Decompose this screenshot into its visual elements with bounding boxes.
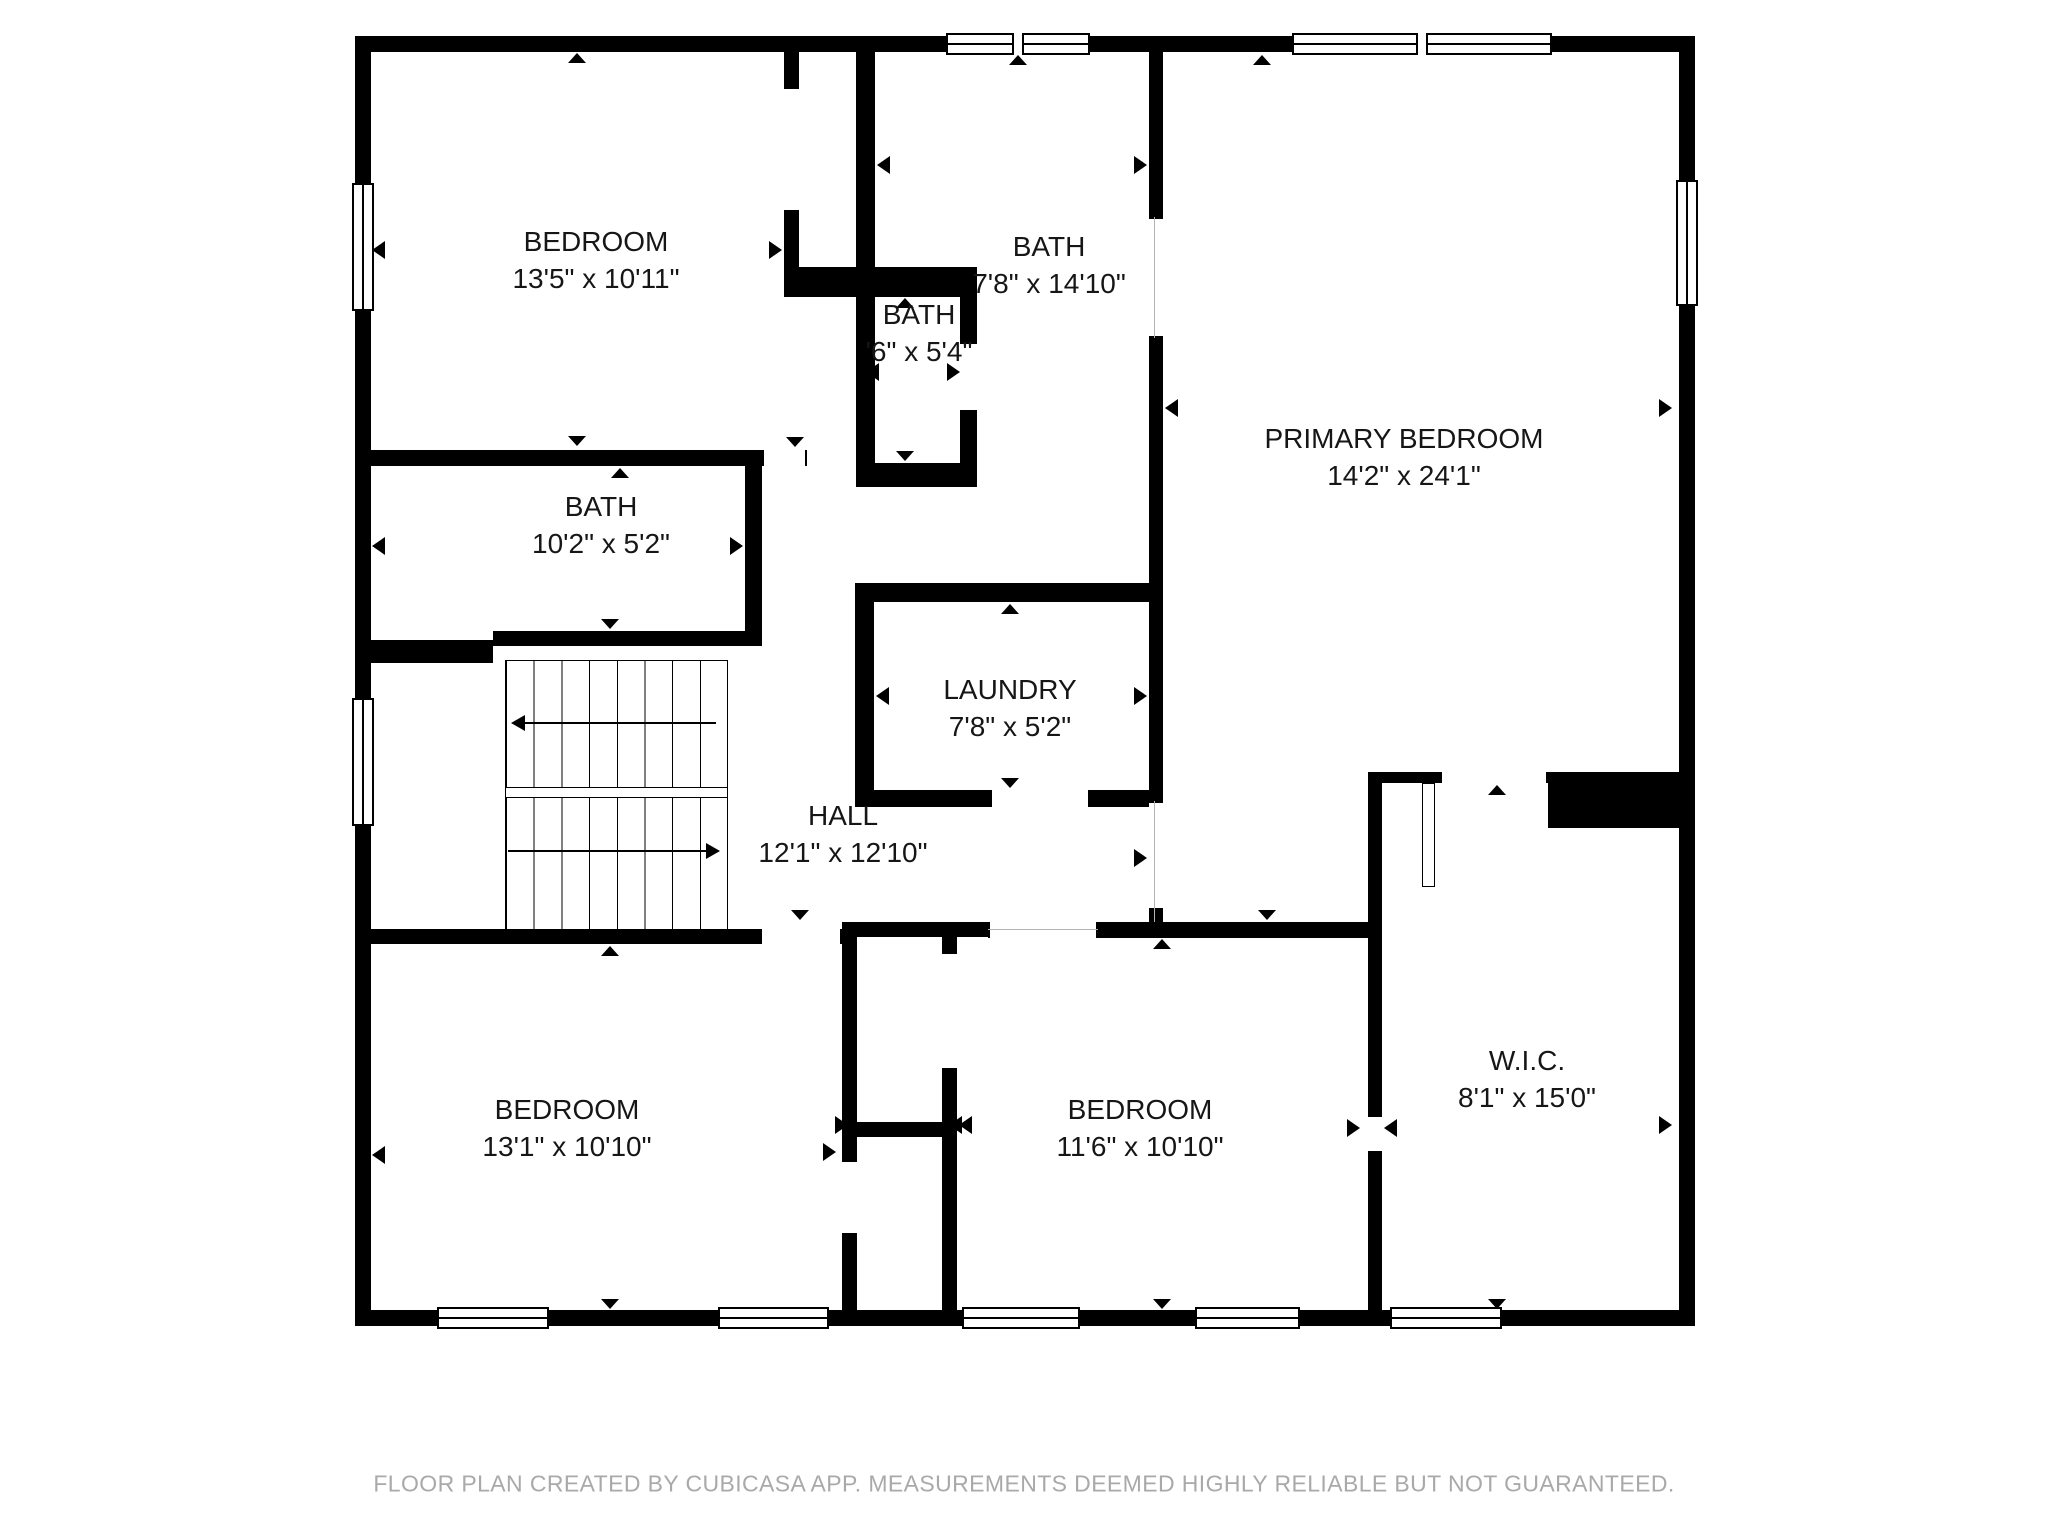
measure-arrow-icon (877, 156, 890, 174)
door-opening (762, 450, 807, 466)
measure-arrow-icon (372, 1146, 385, 1164)
wall (1368, 772, 1440, 783)
stair-direction-arrow (508, 850, 706, 852)
room-boundary-line (1154, 801, 1155, 922)
footer-disclaimer: FLOOR PLAN CREATED BY CUBICASA APP. MEAS… (373, 1471, 1674, 1498)
measure-arrow-icon (1347, 1119, 1360, 1137)
room-name: PRIMARY BEDROOM (1264, 420, 1543, 457)
measure-arrow-icon (876, 687, 889, 705)
room-label-bedroom-bottom-middle: BEDROOM 11'6" x 10'10" (1056, 1091, 1223, 1165)
room-name: BATH (866, 296, 973, 333)
measure-arrow-icon (1659, 399, 1672, 417)
wall (1098, 922, 1382, 938)
door-opening (1368, 1115, 1382, 1153)
measure-arrow-icon (372, 241, 385, 259)
room-name: BEDROOM (1056, 1091, 1223, 1128)
measure-arrow-icon (1153, 939, 1171, 949)
window (1292, 33, 1552, 55)
room-dims: 13'1" x 10'10" (482, 1128, 651, 1165)
measure-arrow-icon (1001, 604, 1019, 614)
window (1195, 1307, 1300, 1329)
room-label-bedroom-top-left: BEDROOM 13'5" x 10'11" (512, 223, 679, 297)
room-dims: 7'8" x 14'10" (972, 265, 1126, 302)
wall (942, 1070, 957, 1311)
measure-arrow-icon (1488, 785, 1506, 795)
wall (842, 1235, 857, 1311)
room-dims: 11'6" x 10'10" (1056, 1128, 1223, 1165)
room-dims: 14'2" x 24'1" (1264, 457, 1543, 494)
measure-arrow-icon (1253, 55, 1271, 65)
wall (855, 583, 874, 807)
cased-opening (988, 922, 1098, 938)
room-label-bath-left: BATH 10'2" x 5'2" (532, 488, 670, 562)
wall (784, 267, 975, 297)
window (718, 1307, 829, 1329)
room-label-hall: HALL 12'1" x 12'10" (758, 797, 927, 871)
door-opening (990, 790, 1090, 807)
room-label-laundry: LAUNDRY 7'8" x 5'2" (943, 671, 1076, 745)
room-boundary-line (1154, 217, 1155, 338)
measure-arrow-icon (1134, 849, 1147, 867)
stair-landing-rail (506, 787, 727, 798)
wall (856, 51, 875, 487)
arrow-right-icon (706, 843, 720, 859)
room-dims: 12'1" x 12'10" (758, 834, 927, 871)
room-name: BATH (532, 488, 670, 525)
wall (1149, 51, 1163, 217)
room-label-primary-bedroom: PRIMARY BEDROOM 14'2" x 24'1" (1264, 420, 1543, 494)
measure-arrow-icon (791, 910, 809, 920)
room-name: BEDROOM (482, 1091, 651, 1128)
measure-arrow-icon (568, 436, 586, 446)
measure-arrow-icon (601, 946, 619, 956)
wall (1368, 937, 1382, 1115)
wall (855, 583, 1163, 602)
window (962, 1307, 1080, 1329)
door-opening (942, 952, 957, 1070)
wall (1149, 338, 1163, 801)
wall (784, 51, 799, 87)
room-name: LAUNDRY (943, 671, 1076, 708)
room-dims: 10'2" x 5'2" (532, 525, 670, 562)
measure-arrow-icon (568, 53, 586, 63)
measure-arrow-icon (1659, 1116, 1672, 1134)
wall (745, 450, 762, 646)
door-opening (760, 929, 842, 944)
measure-arrow-icon (896, 451, 914, 461)
window (437, 1307, 549, 1329)
wall (784, 212, 799, 270)
wall (856, 463, 963, 487)
wall (1368, 1153, 1382, 1311)
wall (1368, 772, 1382, 922)
measure-arrow-icon (1134, 156, 1147, 174)
room-label-bath-main: BATH 7'8" x 14'10" (972, 228, 1126, 302)
window (946, 33, 1090, 55)
wall (1548, 772, 1680, 828)
room-dims: 7'8" x 5'2" (943, 708, 1076, 745)
stair-flight (506, 661, 727, 787)
staircase (505, 660, 728, 930)
measure-arrow-icon (1001, 778, 1019, 788)
door-opening (1149, 217, 1163, 338)
stair-flight (506, 798, 727, 929)
measure-arrow-icon (1258, 910, 1276, 920)
room-dims: '6" x 5'4" (866, 333, 973, 370)
door-opening (1149, 801, 1163, 910)
wall (370, 929, 760, 944)
measure-arrow-icon (1153, 1299, 1171, 1309)
arrow-left-icon (511, 715, 525, 731)
measure-arrow-icon (730, 537, 743, 555)
measure-arrow-icon (1384, 1119, 1397, 1137)
window (352, 183, 374, 311)
room-label-wic: W.I.C. 8'1" x 15'0" (1458, 1042, 1596, 1116)
floor-plan: BEDROOM 13'5" x 10'11" BATH 7'8" x 14'10… (0, 0, 2048, 1536)
measure-arrow-icon (1488, 1299, 1506, 1309)
wall (370, 640, 493, 663)
room-name: BEDROOM (512, 223, 679, 260)
stair-direction-arrow (524, 722, 716, 724)
door-opening (842, 1160, 857, 1235)
measure-arrow-icon (1009, 55, 1027, 65)
measure-arrow-icon (823, 1143, 836, 1161)
measure-arrow-icon (601, 1299, 619, 1309)
wall (942, 937, 957, 952)
window (1676, 180, 1698, 306)
measure-arrow-icon (611, 468, 629, 478)
wall (370, 450, 762, 466)
measure-arrow-icon (372, 537, 385, 555)
room-label-bedroom-bottom-left: BEDROOM 13'1" x 10'10" (482, 1091, 651, 1165)
room-name: BATH (972, 228, 1126, 265)
measure-arrow-icon (1134, 687, 1147, 705)
window (1390, 1307, 1502, 1329)
wall (857, 1122, 942, 1137)
door-opening (784, 87, 799, 212)
measure-arrow-icon (835, 1116, 848, 1134)
room-dims: 13'5" x 10'11" (512, 260, 679, 297)
measure-arrow-icon (769, 241, 782, 259)
wall (842, 922, 988, 937)
door-opening (1440, 772, 1548, 783)
room-boundary-line (988, 929, 1098, 930)
room-dims: 8'1" x 15'0" (1458, 1079, 1596, 1116)
measure-arrow-icon (786, 437, 804, 447)
room-name: W.I.C. (1458, 1042, 1596, 1079)
measure-arrow-icon (1165, 399, 1178, 417)
measure-arrow-icon (949, 1116, 962, 1134)
window (352, 698, 374, 826)
wall (493, 631, 762, 646)
room-label-bath-small: BATH '6" x 5'4" (866, 296, 973, 370)
door-leaf (1422, 783, 1435, 887)
room-name: HALL (758, 797, 927, 834)
measure-arrow-icon (601, 619, 619, 629)
